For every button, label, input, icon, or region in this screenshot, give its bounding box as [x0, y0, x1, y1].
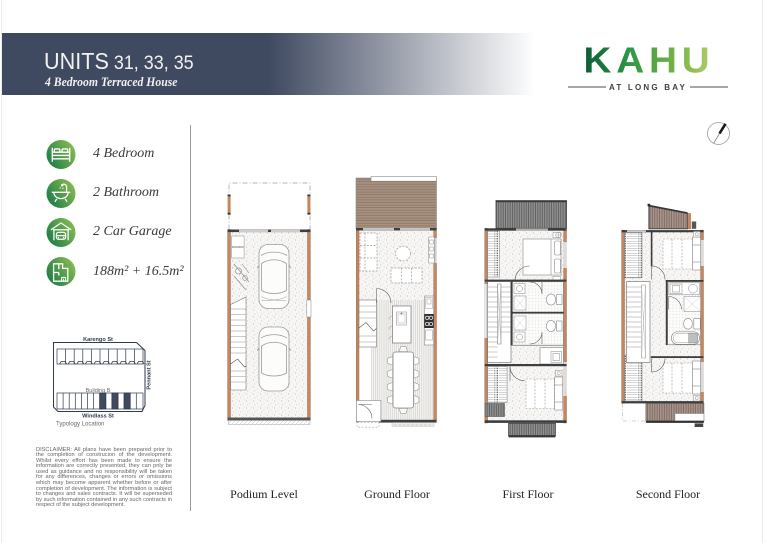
svg-text:KAHU: KAHU [583, 40, 714, 80]
svg-text:Windlass St: Windlass St [82, 414, 114, 420]
svg-text:Pennant St: Pennant St [147, 360, 153, 389]
svg-text:AT LONG BAY: AT LONG BAY [609, 83, 687, 92]
svg-text:Karengo St: Karengo St [83, 337, 113, 343]
svg-text:Typology Location: Typology Location [56, 422, 104, 428]
